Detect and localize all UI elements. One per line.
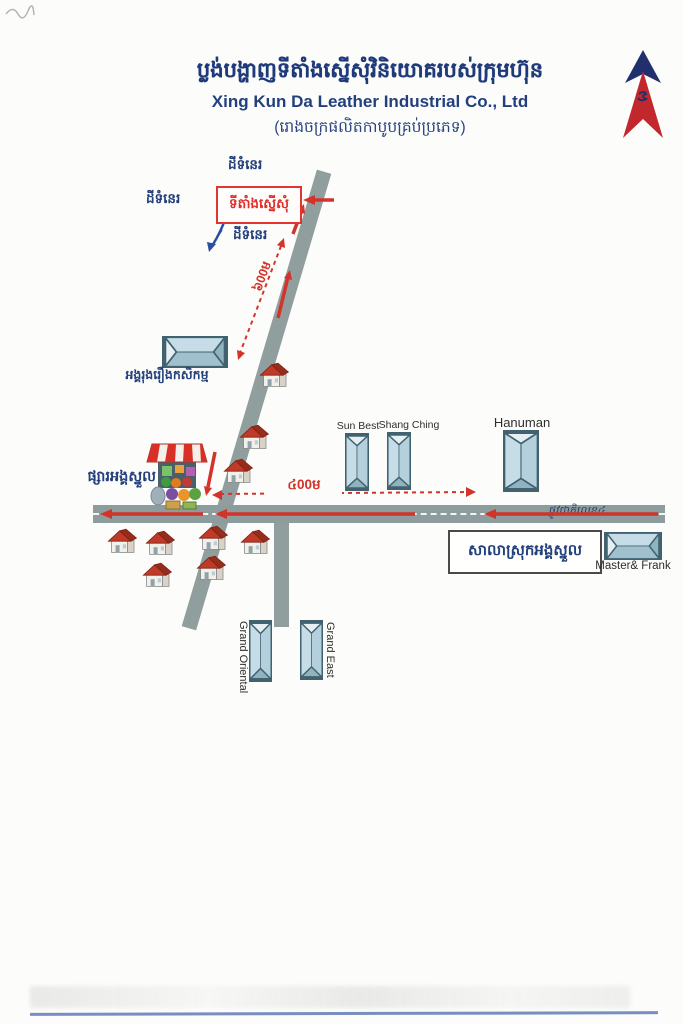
side-road-stub <box>274 523 289 627</box>
page-title-khmer: ប្លង់បង្ហាញទីតាំងស្នើសុំវិនិយោគរបស់ក្រុម… <box>90 56 650 86</box>
house-icon <box>144 530 176 558</box>
scan-smudge <box>30 986 630 1008</box>
vacant-land-label-bottom: ដីទំនេរ <box>233 226 267 246</box>
hanuman-label: Hanuman <box>486 415 558 430</box>
grand-oriental-label: Grand Oriental <box>237 621 249 693</box>
building-agriculture-company <box>162 336 228 368</box>
requested-site-box: ទីតាំងស្នើសុំ <box>216 186 302 224</box>
requested-site-label: ទីតាំងស្នើសុំ <box>229 195 289 215</box>
house-icon <box>238 424 270 452</box>
master-frank-label: Master& Frank <box>590 560 676 572</box>
house-icon <box>195 555 227 583</box>
building-grand-east <box>300 620 323 680</box>
scan-blue-line <box>30 1011 658 1016</box>
house-icon <box>239 529 271 557</box>
distance-label-national-road: ៤00ម <box>266 476 342 496</box>
house-icon <box>197 525 229 553</box>
pencil-scribble <box>6 6 34 18</box>
building-shang-ching <box>387 432 411 490</box>
vacant-land-label-top: ដីទំនេរ <box>228 156 262 176</box>
grand-east-label: Grand East <box>324 622 336 678</box>
national-road-name-label: ផ្លូវជាតិលេខ៤ <box>548 504 658 520</box>
district-hall-box: សាលាស្រុកអង្គស្នួល <box>448 530 602 574</box>
district-hall-label: សាលាស្រុកអង្គស្នួល <box>468 541 582 563</box>
building-hanuman <box>503 430 539 492</box>
distance-arrow-national-road <box>212 487 476 500</box>
market-label: ផ្សារអង្គស្នួល <box>60 468 156 489</box>
shang-ching-label: Shang Ching <box>375 419 443 431</box>
house-icon <box>258 362 290 390</box>
building-sun-best <box>345 433 369 491</box>
house-icon <box>222 458 254 486</box>
agriculture-company-label: អង្គរុងរឿងកសិកម្ម <box>96 368 238 386</box>
house-icon <box>141 562 173 590</box>
page-subtitle-khmer: (រោងចក្រផលិតកាបូបគ្រប់ប្រភេទ) <box>90 117 650 140</box>
building-master-frank <box>604 532 662 560</box>
vacant-land-label-left: ដីទំនេរ <box>146 190 180 210</box>
building-grand-oriental <box>249 620 272 682</box>
north-arrow-icon <box>616 48 670 142</box>
scanned-location-map-page: ប្លង់បង្ហាញទីតាំងស្នើសុំវិនិយោគរបស់ក្រុម… <box>0 0 683 1024</box>
page-title-english: Xing Kun Da Leather Industrial Co., Ltd <box>90 92 650 112</box>
house-icon <box>106 528 138 556</box>
